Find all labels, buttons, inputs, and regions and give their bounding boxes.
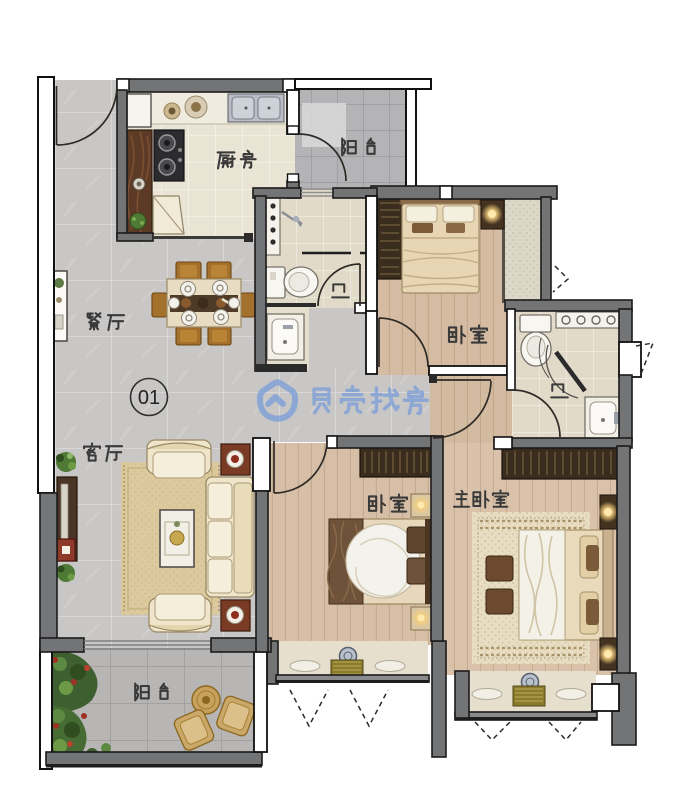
svg-text:01: 01 xyxy=(138,387,160,409)
